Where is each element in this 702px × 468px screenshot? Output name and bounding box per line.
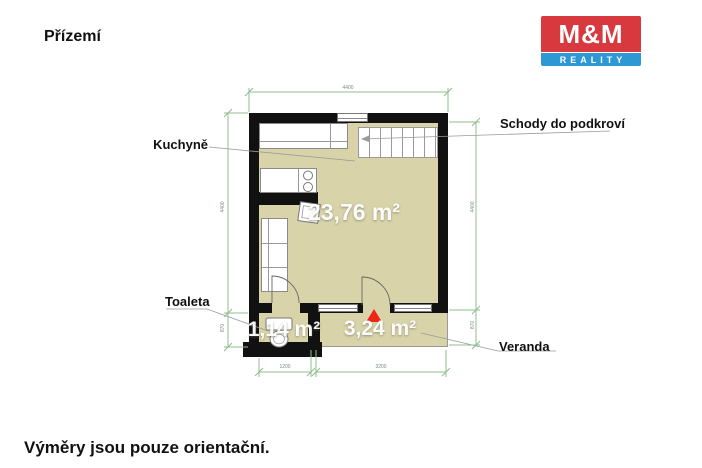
area-main-room: 23,76 m² — [284, 199, 424, 226]
floor-plan-page: Přízemí Výměry jsou pouze orientační. M&… — [0, 0, 702, 468]
label-veranda: Veranda — [499, 339, 550, 354]
wall-bottom-left-block — [243, 342, 322, 357]
dim-top-width: 4400 — [338, 85, 358, 91]
toilet-door-opening — [272, 303, 300, 313]
dim-left-lower: 870 — [220, 318, 226, 338]
window-veranda-right — [394, 304, 432, 312]
label-stairs: Schody do podkroví — [500, 116, 625, 131]
dim-right-lower: 870 — [470, 315, 476, 335]
kitchen-counter — [259, 123, 348, 149]
dim-bottom-left: 1200 — [275, 364, 295, 370]
label-toilet: Toaleta — [165, 294, 210, 309]
area-toilet: 1,14 m² — [240, 318, 328, 342]
dim-bottom-right: 3200 — [371, 364, 391, 370]
floor-plan: Kuchyně Schody do podkroví Toaleta Veran… — [0, 0, 702, 468]
window-veranda-left — [318, 304, 358, 312]
sofa — [261, 218, 288, 292]
wall-right — [438, 113, 448, 313]
stairs — [358, 127, 438, 158]
label-kitchen: Kuchyně — [118, 137, 208, 152]
dim-left-height: 4400 — [220, 197, 226, 217]
kitchen-stove — [260, 168, 317, 193]
window-top — [337, 113, 368, 122]
area-veranda: 3,24 m² — [334, 317, 426, 341]
dim-right-height: 4400 — [470, 197, 476, 217]
